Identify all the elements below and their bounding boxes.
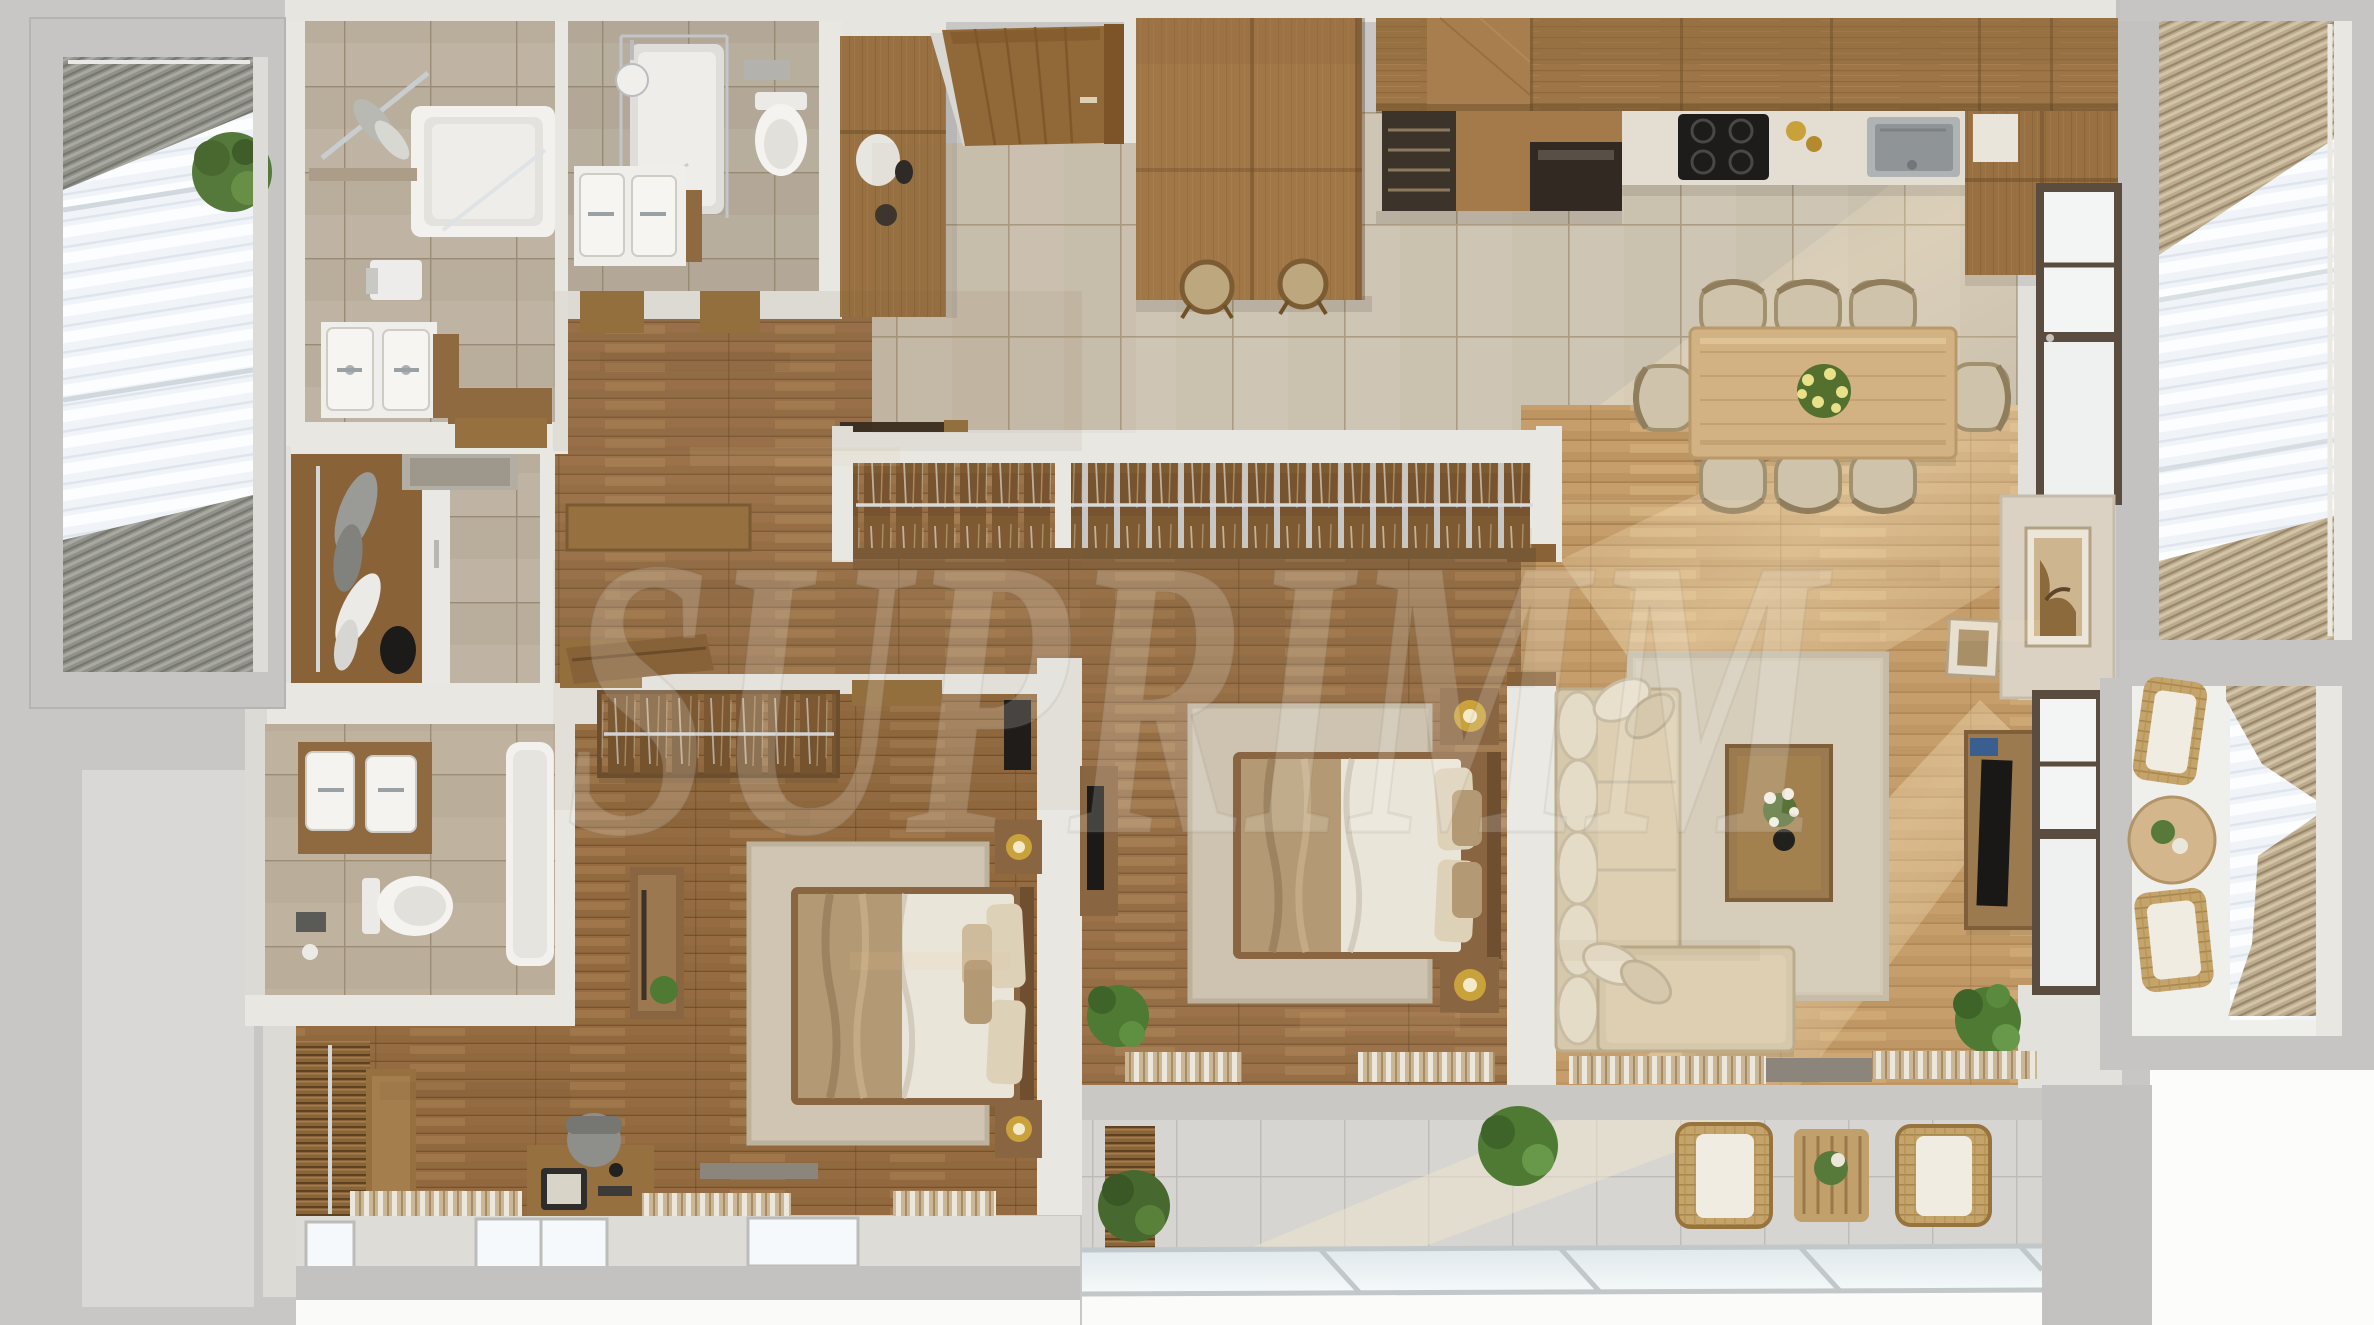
svg-text:SUPRIMM: SUPRIMM: [565, 476, 1834, 919]
